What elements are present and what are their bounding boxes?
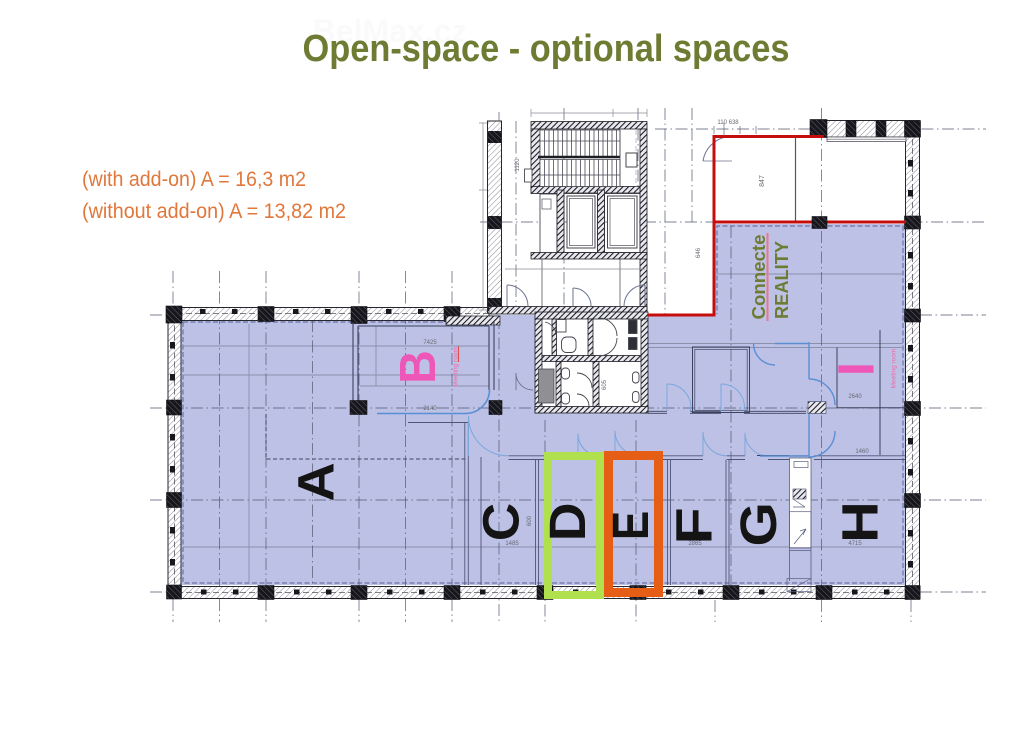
svg-text:1120: 1120 — [515, 158, 521, 172]
svg-text:F: F — [666, 507, 723, 544]
svg-text:Open-space - optional spaces: Open-space - optional spaces — [303, 28, 790, 70]
svg-text:7425: 7425 — [423, 340, 437, 346]
svg-text:847: 847 — [759, 175, 766, 187]
svg-text:2865: 2865 — [688, 541, 702, 547]
svg-text:Connecte: Connecte — [749, 235, 769, 320]
svg-text:(with add-on) A = 16,3 m2: (with add-on) A = 16,3 m2 — [82, 168, 306, 191]
svg-text:H: H — [832, 501, 889, 543]
svg-text:G: G — [730, 502, 787, 546]
svg-text:600: 600 — [527, 515, 533, 526]
svg-text:Meeting room: Meeting room — [891, 349, 898, 389]
svg-text:D: D — [539, 502, 596, 541]
svg-text:2140: 2140 — [423, 406, 437, 412]
svg-text:1485: 1485 — [505, 541, 519, 547]
svg-text:B: B — [389, 350, 446, 384]
svg-text:646: 646 — [696, 247, 702, 258]
svg-text:A: A — [288, 462, 345, 501]
svg-text:(without add-on) A = 13,82 m2: (without add-on) A = 13,82 m2 — [82, 200, 346, 223]
svg-text:E: E — [602, 511, 659, 540]
svg-text:1460: 1460 — [855, 449, 869, 455]
svg-text:605: 605 — [602, 379, 608, 390]
svg-text:C: C — [473, 503, 530, 541]
svg-text:I: I — [828, 362, 885, 376]
svg-text:4715: 4715 — [848, 541, 862, 547]
svg-text:REALITY: REALITY — [772, 241, 792, 319]
svg-text:110 638: 110 638 — [717, 120, 739, 126]
svg-text:2640: 2640 — [848, 394, 862, 400]
